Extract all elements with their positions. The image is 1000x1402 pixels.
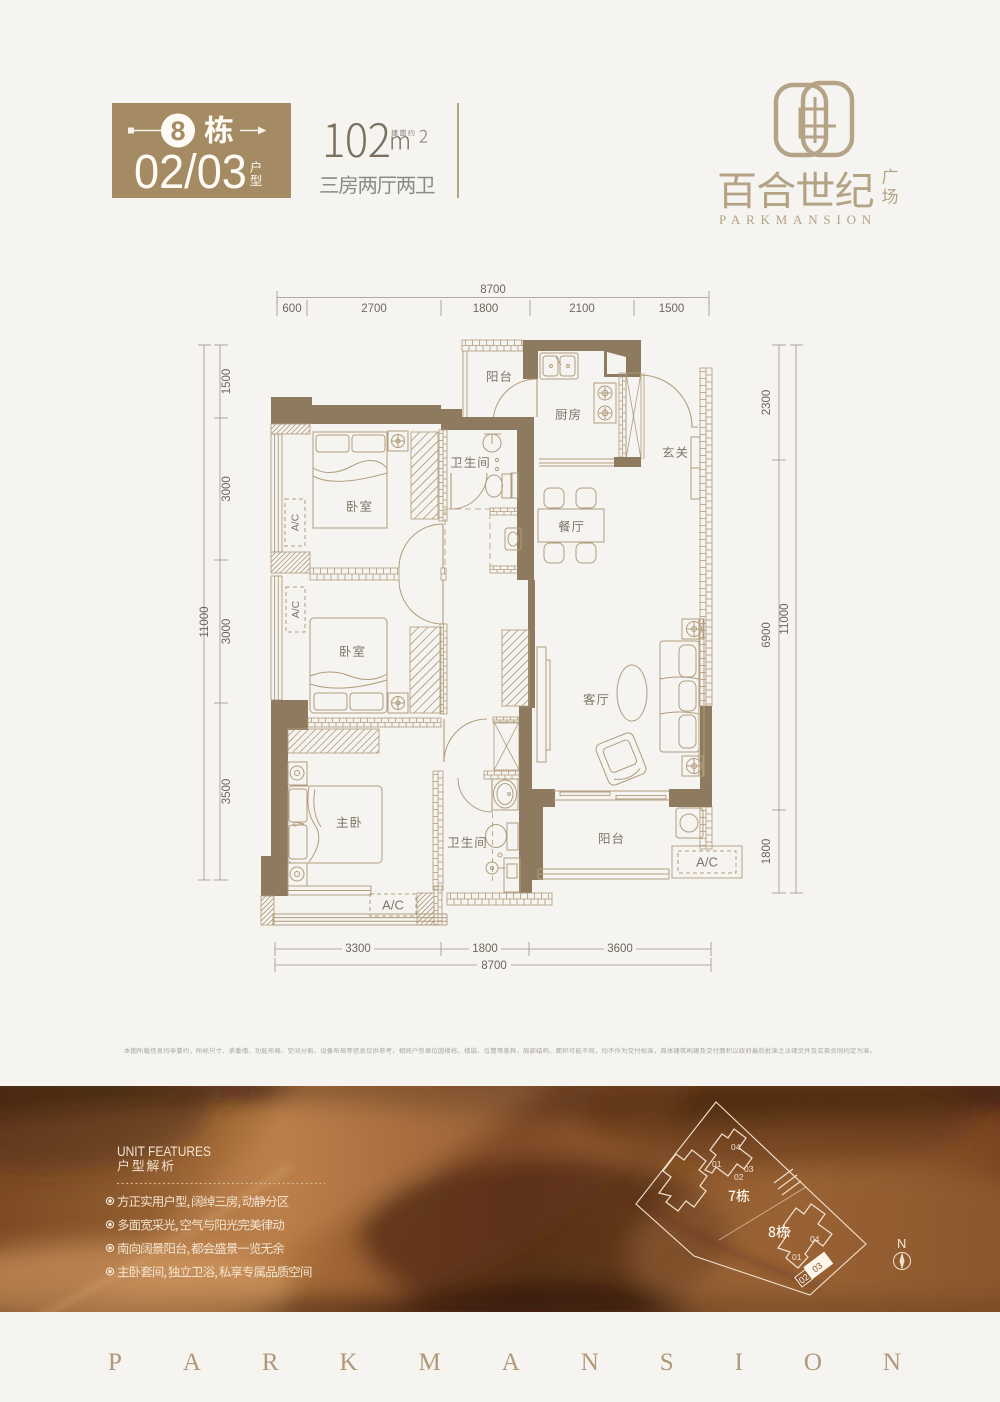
- svg-text:3500: 3500: [221, 779, 233, 805]
- svg-text:A/C: A/C: [290, 513, 302, 531]
- svg-text:3000: 3000: [221, 476, 233, 502]
- svg-text:11000: 11000: [199, 606, 211, 637]
- svg-text:A/C: A/C: [382, 898, 404, 913]
- svg-text:A/C: A/C: [290, 600, 302, 618]
- svg-text:1500: 1500: [221, 369, 233, 395]
- svg-text:1500: 1500: [659, 303, 685, 315]
- svg-text:6900: 6900: [761, 622, 773, 648]
- svg-text:2300: 2300: [761, 390, 773, 416]
- svg-text:03: 03: [744, 1164, 754, 1174]
- svg-text:8700: 8700: [480, 284, 506, 296]
- svg-text:02: 02: [734, 1172, 744, 1182]
- svg-text:2700: 2700: [361, 303, 387, 315]
- svg-text:04: 04: [731, 1142, 741, 1152]
- svg-text:04: 04: [810, 1234, 820, 1244]
- svg-text:1800: 1800: [473, 303, 499, 315]
- svg-text:600: 600: [282, 303, 301, 315]
- svg-text:N: N: [897, 1236, 906, 1251]
- svg-text:2100: 2100: [569, 303, 595, 315]
- svg-text:3300: 3300: [345, 943, 371, 955]
- svg-text:01: 01: [712, 1159, 722, 1169]
- svg-text:3000: 3000: [221, 619, 233, 645]
- svg-text:1800: 1800: [472, 943, 498, 955]
- svg-text:01: 01: [792, 1252, 802, 1262]
- svg-text:11000: 11000: [779, 603, 791, 634]
- svg-text:3600: 3600: [607, 943, 633, 955]
- svg-text:A/C: A/C: [696, 855, 718, 870]
- svg-text:8700: 8700: [481, 960, 507, 972]
- svg-text:1800: 1800: [761, 839, 773, 865]
